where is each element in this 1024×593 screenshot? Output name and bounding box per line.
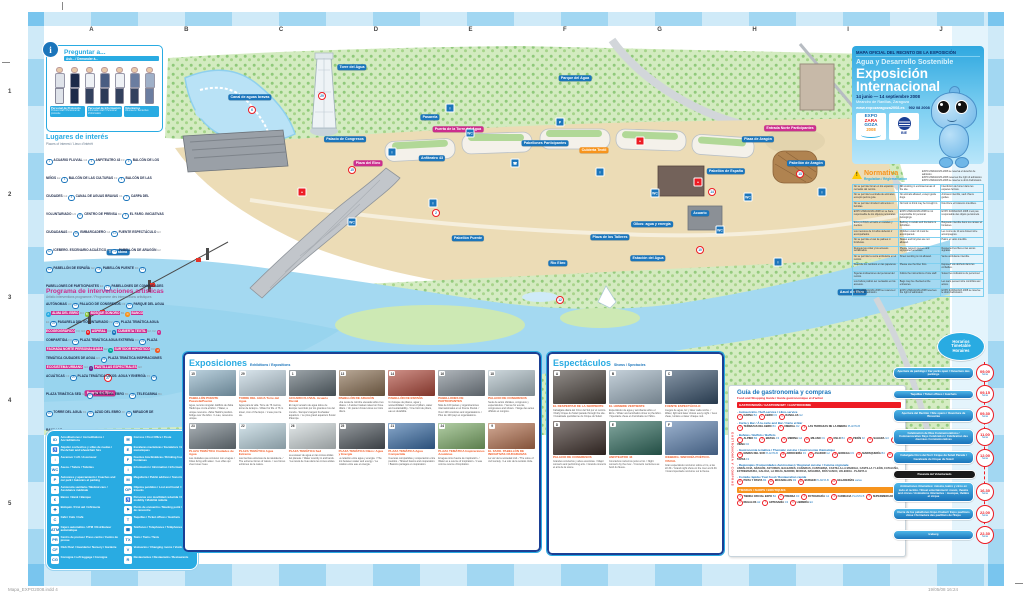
exhibition-card: 18 PALACIO DE CONGRESOS Sede de actos of… — [488, 370, 535, 420]
exhibition-photo: 24 — [438, 423, 485, 449]
place-item: 30AZUD DEL EBRO J3 — [87, 410, 125, 414]
regulation-es: No se permite introducir alimentos ni be… — [853, 201, 899, 209]
place-grid-ref: B3 — [118, 212, 121, 216]
place-item: 4BALCÓN DE LAS CULTURAS F2 — [61, 176, 118, 180]
show-letter-badge: A — [554, 371, 560, 376]
exhibition-description: Cuencas compartidas y cooperación entre … — [388, 457, 435, 466]
show-photo: D — [553, 421, 606, 455]
map-label: Oikos: agua y energía — [631, 221, 673, 227]
exhibitions-subtitle: Exhibitions / Expositions — [250, 363, 290, 367]
place-grid-ref: H3 — [72, 212, 76, 216]
legend-icon: C — [51, 516, 59, 524]
exhibition-description: Una cesta de mimbre elevada sobre tres p… — [339, 401, 386, 413]
map-number-marker: 14 — [708, 188, 716, 196]
map-service-icon: + — [298, 188, 307, 197]
art-grid-ref: E3 — [138, 365, 141, 369]
restaurant-entry: 8BRASIL F3 — [759, 437, 781, 440]
place-grid-ref: D4 — [68, 230, 72, 234]
art-name: ALMA DEL EBRO — [51, 311, 79, 315]
staff-role-subtitle: Protocol staff / Personnel de protocole — [51, 110, 84, 116]
art-letter-badge: D — [86, 330, 91, 335]
exhibition-photo: 21 — [388, 423, 435, 449]
staff-figure — [115, 67, 125, 105]
exhibition-description: Más de 100 países y organizaciones inter… — [438, 404, 485, 416]
place-name: BALCÓN DE LAS CULTURAS — [69, 176, 113, 180]
grid-letter: D — [374, 27, 378, 33]
legend-icon: ☎ — [124, 526, 132, 534]
place-item: 27PUERTA DEL EBRO B4 — [87, 392, 130, 396]
restaurant-entry: 22BOCADILLOS D3 — [768, 479, 798, 482]
places-subtitle: Places of interest / Lieux d'intérêt — [46, 142, 165, 146]
art-item: AALMA DEL EBRO D4 — [46, 311, 85, 315]
show-letter-badge: E — [610, 422, 616, 427]
exhibition-description: La escasez de agua en las zonas áridas d… — [289, 454, 336, 463]
regulation-en: Skates and bicycles are not allowed. — [898, 238, 940, 246]
legend-label: Asistencia sanitaria / Medical care / As… — [61, 486, 120, 493]
grid-number: 3 — [8, 295, 11, 301]
show-photo: F — [665, 421, 718, 455]
restaurant-entry: 19MARISQUERÍA B4 — [856, 452, 887, 455]
timetable-entry: Cabalgata Circo del Sol / Cirque du Sole… — [893, 449, 994, 467]
grid-number: 4 — [8, 398, 11, 404]
map-label: Pabellones Participantes — [522, 140, 569, 146]
legend-label: Café / Cafe / Café — [61, 516, 84, 519]
regulation-row: No se permite el uso de patines ni bicic… — [853, 238, 984, 246]
legend-icon: ✚ — [51, 506, 59, 514]
timetable-entry-volunteers: Pasarela del Voluntariado — [893, 470, 994, 479]
art-grid-ref: F3, G3 — [76, 329, 85, 333]
place-number-badge: 7 — [123, 195, 130, 202]
map-label: Estación del Agua — [630, 255, 665, 261]
shop-entry: 8LIBRERÍA E4 — [790, 501, 815, 504]
place-name: PABELLONES DE PARTICIPANTES — [46, 284, 99, 288]
figure-torso — [85, 73, 95, 88]
place-name: ACUARIO FLUVIAL — [53, 158, 82, 162]
place-number-badge: 28 — [129, 393, 136, 400]
legend-label: Ascensor / Lift / Ascenseur — [61, 456, 97, 459]
admission-note: EXPO ZARAGOZA 2008 se reserva el derecho… — [922, 170, 984, 182]
regulation-fr: Vente ambulante interdite. — [940, 255, 983, 263]
show-description: Cabalgata diaria del Circo del Sol por e… — [553, 409, 606, 418]
regulations-table: No se permite fumar en los espacios cerr… — [852, 184, 984, 297]
restaurant-entry: 15MARES DEL SUR PLANTA B — [737, 452, 780, 455]
grid-number: 5 — [8, 501, 11, 507]
legend-item: + Asistencia sanitaria / Medical care / … — [51, 486, 120, 494]
timetable-label: Iceberg — [893, 530, 974, 539]
exhibition-card: 15 PABELLÓN PUENTE Pasarela/Puente Agua,… — [189, 370, 236, 420]
show-description: Gran espectáculo nocturno sobre el río, … — [665, 464, 718, 473]
info-icon: i — [42, 41, 59, 58]
place-name: EMBARCADERO — [80, 230, 106, 234]
exhibition-description: Las fuerzas extremas de la naturaleza. /… — [239, 457, 286, 466]
regulation-fr: Baignade interdite dans les canaux et fo… — [940, 221, 983, 229]
timetable-time: 16.30horas — [976, 483, 994, 501]
staff-role: Voluntarios Volunteers / Bénévoles — [124, 106, 159, 117]
mascot-leg — [939, 157, 953, 168]
place-name: FUENTE ESPECTÁCULO — [119, 230, 157, 234]
legend-label: Consigna / Left luggage / Consigne — [61, 556, 108, 559]
legend-item: ID Acreditaciones / Accreditations / Acc… — [51, 436, 120, 444]
map-label: Río Ebro — [548, 260, 567, 266]
exhibition-number-badge: 16 — [439, 371, 445, 376]
legend-label: Restaurantes / Restaurants / Restaurants — [134, 556, 189, 559]
place-number-badge: 5 — [118, 177, 125, 184]
place-item: 14PABELLÓN DE ESPAÑA G2 — [46, 266, 95, 270]
art-letter-badge: C — [125, 312, 130, 317]
exhibition-name: EL FARO. PABELLÓN DE INICIATIVAS CIUDADA… — [488, 450, 535, 457]
regulation-fr: Les sacs peuvent être contrôlés aux accè… — [940, 280, 983, 288]
place-grid-ref: G2 — [91, 266, 95, 270]
restaurant-entry: 23BURGER PLANTA B — [798, 479, 831, 482]
horas-label: horas — [982, 458, 988, 461]
art-grid-ref: G3 — [84, 365, 88, 369]
legend-label: Taxis / Taxis / Taxis — [134, 536, 160, 539]
regulation-en: Please respect queues and signposted acc… — [898, 246, 940, 254]
figure-torso — [55, 73, 65, 88]
border-corner — [28, 12, 44, 26]
art-name: ECOSISTEMA URBANO — [46, 365, 83, 369]
gastro-subtitle: Food and Shopping Guide / Guide gastrono… — [737, 396, 901, 400]
exhibition-photo: 23 — [189, 423, 236, 449]
show-cards: A EL DESPERTAR DE LA SERPIENTE Cabalgata… — [553, 370, 718, 473]
legend-item: € Banco / Bank / Banque — [51, 496, 120, 504]
place-item: 28TELECABINA B4 — [129, 392, 161, 396]
shop-entry: 4FARMACIA PLANTA B — [831, 495, 866, 498]
map-service-icon: i — [446, 104, 455, 113]
place-grid-ref: G3 — [82, 392, 86, 396]
place-name: PUERTA DEL EBRO — [94, 392, 124, 396]
legend-icon: E — [124, 446, 132, 454]
legend-item: ATM Cajero automático / ATM / Distribute… — [51, 526, 120, 534]
border-corner — [28, 564, 44, 586]
gastronomy-bar: GASTRONOMÍA / GASTRONOMY / GASTRONOMIE — [737, 402, 901, 408]
place-grid-ref: H2 — [157, 248, 161, 252]
map-service-icon: ☎ — [511, 159, 520, 168]
exhibition-description: Agua para la vida. Torre de 76 metros, i… — [239, 404, 286, 416]
timetable-entry: Animaciones itinerantes: música, teatro … — [893, 482, 994, 501]
grid-letter: E — [469, 27, 473, 33]
show-description: Conciertos nocturnos junto al río. / Nig… — [609, 460, 662, 469]
regulation-fr: EXPO ZARAGOZA 2008 se réserve le droit d… — [940, 288, 983, 296]
restaurant-entry: 16ARROCERÍA F3 — [780, 452, 808, 455]
regulation-en: EXPO ZARAGOZA 2008 is not responsible fo… — [898, 210, 940, 221]
exhibition-photo: 13 — [339, 370, 386, 396]
legend-icon: ♿ — [124, 496, 132, 504]
exhibition-photo: 25 — [339, 423, 386, 449]
timetable-entry: Iceberg 22.30horas — [893, 526, 994, 544]
place-item: 10EMBARCADERO G4 — [73, 230, 111, 234]
legend-icon: OP — [124, 486, 132, 494]
place-item: 12ICEBERG. ESCENARIO ACUÁTICO E4 — [46, 248, 111, 252]
staff-figure — [100, 67, 110, 105]
place-number-badge: 12 — [46, 249, 53, 256]
place-name: AZUD DEL EBRO — [95, 410, 121, 414]
horas-label: horas — [982, 416, 988, 419]
staff-role-subtitle: Volunteers / Bénévoles — [125, 110, 158, 113]
regulation-fr: Patins et vélos interdits. — [940, 238, 983, 246]
place-grid-ref: F2 — [114, 176, 117, 180]
horas-label: horas — [982, 374, 988, 377]
selfservice-entries: 1DARNA B42EBRO D33RANILLAS G2 — [737, 414, 901, 420]
legend-label: Botiquín / First aid / Infirmerie — [61, 506, 101, 509]
regional-communities: ANDALUCÍA, ARAGÓN, ASTURIAS, BALEARES, C… — [737, 467, 901, 474]
exhibition-description: La relación entre agua y energía. / The … — [339, 457, 386, 466]
legend-icon: ♿ — [51, 446, 59, 454]
art-list: AALMA DEL EBRO D4 BBOSQUE SONORO B1 CBAN… — [46, 301, 165, 373]
art-grid-ref: B1 — [121, 311, 124, 315]
shows-panel: Espectáculos Shows / Spectacles A EL DES… — [547, 352, 724, 555]
legend-label: Acreditaciones / Accreditations / Accréd… — [61, 436, 120, 443]
places-of-interest-panel: Lugares de interés Places of interest / … — [46, 134, 165, 286]
art-item: ECUBIERTA TEXTIL E2, F2 — [112, 329, 157, 333]
place-name: TELECABINA — [137, 392, 158, 396]
place-grid-ref: D4 — [135, 266, 139, 270]
show-card: F ICEBERG. SINFONÍA POÉTICO-VISUAL Gran … — [665, 421, 718, 473]
timetable-label: Apertura de parkings / Car parks open / … — [893, 367, 974, 380]
art-name: SURTIDOR HIPNÓTICO — [114, 347, 151, 351]
map-label: Parque del Agua — [559, 75, 592, 81]
map-label: Canal de aguas bravas — [228, 94, 271, 100]
exhibition-name: PABELLONES DE PARTICIPANTES — [438, 397, 485, 404]
regulation-row: Los bultos podrán ser revisados en los a… — [853, 280, 984, 288]
show-card: D PALACIO DE CONGRESOS Grandes concierto… — [553, 421, 606, 473]
timetable-entry: Celebración de Días Conmemorativos / Com… — [893, 428, 994, 446]
grid-letter: C — [279, 27, 283, 33]
place-number-badge: 2 — [88, 159, 95, 166]
place-grid-ref: E2 — [100, 284, 103, 288]
legend-icon: ✉ — [124, 436, 132, 444]
art-subtitle: Artistic interventions programme / Progr… — [46, 295, 165, 299]
map-service-icon: WC — [716, 226, 725, 235]
mascot-eye — [955, 100, 968, 114]
map-service-icon: WC — [744, 193, 753, 202]
gastro-side-label: GASTRONOMÍA Y COMPRAS — [731, 432, 735, 486]
volunteer-walkway-label: Pasarela del Voluntariado — [893, 470, 976, 479]
art-item: GSURTIDOR HIPNÓTICO F3 — [108, 347, 155, 351]
map-label: Puerta de la Torre del Agua — [433, 126, 484, 132]
show-card: E ANFITEATRO 43 Conciertos nocturnos jun… — [609, 421, 662, 473]
restaurant-entry: 10MILANO D1 — [804, 437, 827, 440]
exhibition-description: El agua como fuente de inspiración. / Wa… — [438, 457, 485, 466]
ask-staff-box: i Preguntar a... Ask... / Demander à... — [46, 45, 163, 132]
legend-item: R Restaurantes / Restaurants / Restauran… — [124, 556, 193, 564]
timetable-entry: Taquillas / Ticket offices / Guichets 09… — [893, 385, 994, 403]
legend-item: WC Aseos / Toilets / Toilettes — [51, 466, 120, 474]
legend-icon: ID — [51, 436, 59, 444]
exhibition-photo: 16 — [438, 370, 485, 396]
legend-icon: ↕ — [51, 456, 59, 464]
figure-torso — [145, 73, 155, 88]
art-letter-badge: F — [157, 330, 162, 335]
art-letter-badge: B — [85, 312, 90, 317]
legend-item: CF Club Fluvi / Guardería / Nursery / Ga… — [51, 546, 120, 554]
place-name: TORRE DEL AGUA — [53, 410, 81, 414]
exhibition-description: Agua, recurso singular. Edificio de Zaha… — [189, 404, 236, 419]
legend-icon: TX — [124, 536, 132, 544]
buffet-entries: 7ALPINO B28BRASIL F39MEDINA G410MILANO D… — [737, 437, 901, 447]
legend-icon: € — [51, 496, 59, 504]
exhibition-name: PLAZA TEMÁTICA Agua Compartida — [388, 450, 435, 457]
place-name: PLAZA TEMÁTICA SED — [46, 392, 81, 396]
expo-theme: Agua y Desarrollo Sostenible — [856, 59, 980, 66]
staff-figure — [70, 67, 80, 105]
regulation-es: EXPO ZARAGOZA 2008 se reserva el derecho… — [853, 288, 899, 296]
exhibition-card: 25 PLAZA TEMÁTICA Oikos: Agua y Energía … — [339, 423, 386, 467]
place-number-badge: 15 — [95, 267, 102, 274]
exhibition-name: TORRE DEL AGUA Torre del Agua — [239, 397, 286, 404]
map-label: Plaza del Ebro — [354, 160, 383, 166]
map-label: Pabellón Puente — [452, 235, 484, 241]
shows-title: Espectáculos — [553, 358, 611, 368]
regulation-en: No smoking in enclosed areas of the site… — [898, 185, 940, 193]
regulation-en: Children under 14 must be accompanied. — [898, 229, 940, 237]
horas-label: horas — [982, 395, 988, 398]
regulation-es: Los bultos podrán ser revisados en los a… — [853, 280, 899, 288]
restaurant-entry: 4TERRAZAS DEL EBRO B4 — [737, 425, 778, 428]
exhibition-number-badge: 18 — [489, 371, 495, 376]
regulation-fr: Animaux interdits, sauf chiens guides. — [940, 193, 983, 201]
exhibition-number-badge: 21 — [389, 424, 395, 429]
exhibition-number-badge: 22 — [240, 424, 246, 429]
legend-item: ↕ Ascensor / Lift / Ascenseur — [51, 456, 120, 464]
map-service-icon: + — [694, 178, 703, 187]
legend-icon: CG — [51, 556, 59, 564]
timetable-bubble: Horarios Timetable Horaires — [937, 332, 985, 361]
place-name: ANFITEATRO 43 — [96, 158, 121, 162]
exhibition-number-badge: 1 — [290, 371, 296, 376]
art-letter-badge: A — [46, 312, 51, 317]
timetable-label: Apertura del Recinto / Site opens / Ouve… — [893, 409, 974, 422]
place-grid-ref: G4 — [107, 230, 111, 234]
regulations-subtitle: Regulation / Réglementation — [864, 177, 907, 181]
restaurant-entry: 6LAS TERRAZAS DE LA RIBERA PLANTA B — [801, 425, 862, 428]
show-description: Espectáculo de agua y acrobacia sobre el… — [609, 409, 662, 418]
show-photo: C — [665, 370, 718, 404]
place-item: 8CENTRO DE PRENSA B3 — [77, 212, 123, 216]
fluvi-mascot — [925, 92, 983, 168]
art-letter-badge: E — [112, 330, 117, 335]
staff-figure — [145, 67, 155, 105]
exhibition-name: PABELLÓN PUENTE Pasarela/Puente — [189, 397, 236, 404]
staff-figure — [130, 67, 140, 105]
legend-label: Vestuarios / Changing rooms / Vestiaires — [134, 546, 188, 549]
legend-icon: F — [124, 456, 132, 464]
map-number-marker: 10 — [696, 246, 704, 254]
horas-label: horas — [982, 437, 988, 440]
place-number-badge: 6 — [68, 195, 75, 202]
map-label: Pabellón de España — [707, 168, 745, 174]
map-number-marker: 6 — [248, 106, 256, 114]
staff-roles: Personal de Protocolo Protocol staff / P… — [50, 106, 159, 117]
place-grid-ref: G2 — [64, 194, 68, 198]
legend-item: ♿ Alquiler cochecitos y sillas de ruedas… — [51, 446, 120, 454]
mascot-mouth — [947, 116, 957, 122]
mascot-eye — [937, 100, 950, 114]
figure-legs — [85, 88, 94, 104]
place-number-badge: 3 — [125, 159, 132, 166]
figure-legs — [145, 88, 154, 104]
regulation-es: No se permite el uso de patines ni bicic… — [853, 238, 899, 246]
exhibition-description: Sede de actos oficiales, congresos y esp… — [488, 401, 535, 413]
exhibition-description: Un bosque de pilares, agua y sostenibili… — [388, 401, 435, 413]
exhibition-card: 14 PABELLÓN DE ESPAÑA Un bosque de pilar… — [388, 370, 435, 420]
place-number-badge: 8 — [77, 213, 84, 220]
show-letter-badge: C — [666, 371, 672, 376]
exhibition-photo: 15 — [189, 370, 236, 396]
regulation-es: EXPO ZARAGOZA 2008 no se hace responsabl… — [853, 210, 899, 221]
regulation-es: Respete las colas y los accesos señaliza… — [853, 246, 899, 254]
restaurant-entry: 24HELADERÍAS varias — [831, 479, 864, 482]
fastfood-entries: 21PIZZA Y PASTA B422BOCADILLOS D323BURGE… — [737, 479, 901, 485]
place-item: 13PABELLÓN DE ARAGÓN H2 — [111, 248, 160, 252]
map-label: Plaza de Aragón — [742, 136, 774, 142]
place-number-badge: 10 — [73, 231, 80, 238]
place-grid-ref: D1 — [83, 410, 87, 414]
art-name: PASTILLAS ESPECTRALES — [94, 365, 137, 369]
grid-letter: J — [939, 27, 942, 33]
figure-legs — [55, 88, 64, 104]
place-grid-ref: E3 — [157, 230, 160, 234]
restaurant-entry: 17ASADOR G2 — [808, 452, 832, 455]
mascot-body — [939, 124, 969, 158]
legend-icon: PR — [51, 536, 59, 544]
legend-label: Club Fluvi / Guardería / Nursery / Garde… — [61, 546, 117, 549]
services-legend: ID Acreditaciones / Accreditations / Acc… — [46, 430, 198, 570]
legend-item: PR Centro de prensa / Press centre / Cen… — [51, 536, 120, 544]
horas-label: horas — [982, 515, 988, 518]
map-service-icon: i — [596, 168, 605, 177]
art-item: BBOSQUE SONORO B1 — [85, 311, 126, 315]
print-filename: Mapa_EXPO2008.indd 4 — [8, 587, 58, 592]
exhibitions-title: Exposiciones — [189, 358, 247, 368]
map-service-icon: WC — [651, 189, 660, 198]
exhibition-number-badge: 15 — [190, 371, 196, 376]
place-grid-ref: G3 — [84, 158, 88, 162]
regulation-fr: Interdiction de fumer dans les espaces f… — [940, 185, 983, 193]
exhibition-photo: 22 — [239, 423, 286, 449]
grid-number: 1 — [8, 89, 11, 95]
legend-icon: CF — [51, 546, 59, 554]
timetable-entry: Apertura del Recinto / Site opens / Ouve… — [893, 406, 994, 424]
figure-legs — [70, 88, 79, 104]
exhibition-number-badge: 14 — [389, 371, 395, 376]
expo-zaragoza-logo: EXPO ZARA GOZA 2008 — [856, 113, 886, 140]
timetable-label: Taquillas / Ticket offices / Guichets — [893, 390, 974, 399]
exhibition-description: Las ciudades que conviven con el agua. /… — [189, 457, 236, 466]
exhibition-name: PABELLÓN DE ESPAÑA — [388, 397, 435, 400]
exhibition-number-badge: 13 — [340, 371, 346, 376]
regulation-es: Deposite los residuos en las papeleras. — [853, 263, 899, 271]
place-number-badge: 27 — [87, 393, 94, 400]
place-item: 2ANFITEATRO 43 F3 — [88, 158, 125, 162]
place-name: PABELLÓN DE ESPAÑA — [53, 266, 90, 270]
legend-label: Centro de prensa / Press centre / Centre… — [61, 536, 120, 543]
show-letter-badge: B — [610, 371, 616, 376]
show-description: Grandes conciertos y artes escénicas. / … — [553, 460, 606, 469]
place-grid-ref: F3 — [147, 374, 150, 378]
legend-label: Banco / Bank / Banque — [61, 496, 91, 499]
map-label: Palacio de Congresos — [324, 136, 366, 142]
timetable-time: 09.30horas — [976, 406, 994, 424]
exhibition-name: PLAZA TEMÁTICA Inspiraciones Acuáticas — [438, 450, 485, 457]
place-number-badge: 14 — [46, 267, 53, 274]
show-name: ANFITEATRO 43 — [609, 456, 662, 459]
staff-figure — [55, 67, 65, 105]
timetable-label: Cierre de los pabellones Expo-Ciudad / E… — [893, 508, 974, 521]
restaurant-entry: 21PIZZA Y PASTA B4 — [737, 479, 768, 482]
staff-figure — [85, 67, 95, 105]
restaurant-entry: 7ALPINO B2 — [737, 437, 759, 440]
